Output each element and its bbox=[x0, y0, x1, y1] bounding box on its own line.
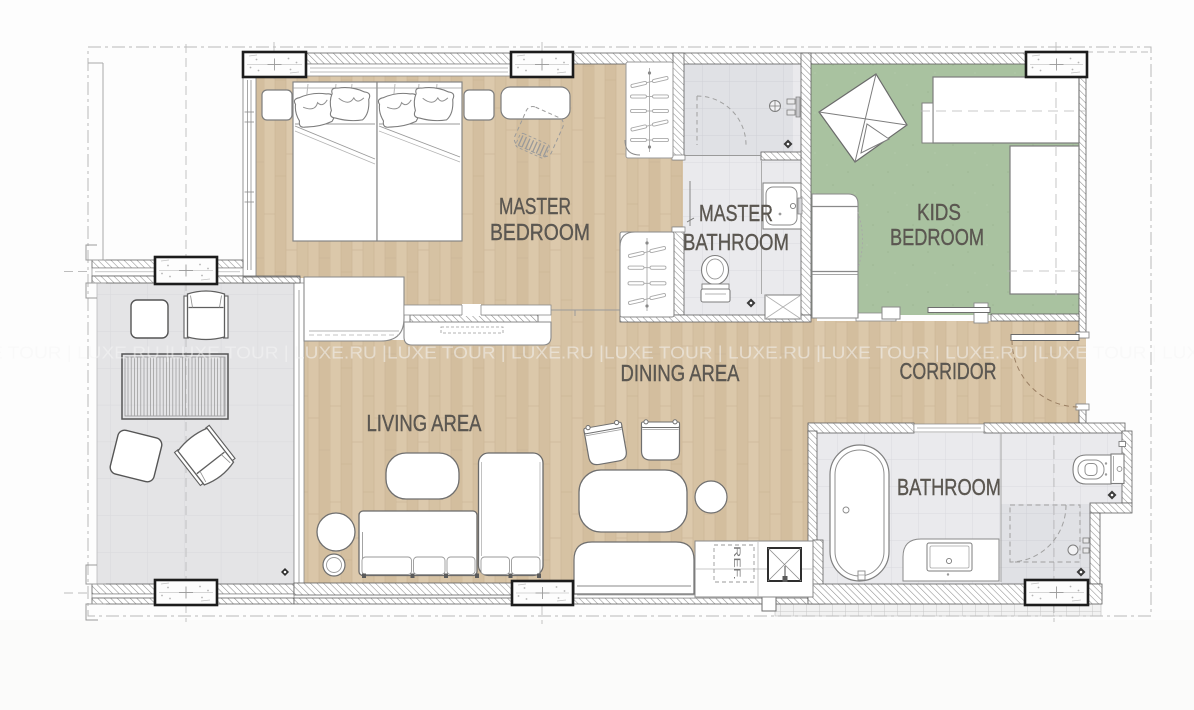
svg-text:MASTER: MASTER bbox=[499, 193, 571, 219]
svg-text:LUXE TOUR | LUXE.RU |LUXE TOUR: LUXE TOUR | LUXE.RU |LUXE TOUR | LUXE.RU… bbox=[0, 343, 1194, 363]
svg-text:MASTER: MASTER bbox=[699, 200, 773, 226]
svg-text:BATHROOM: BATHROOM bbox=[897, 474, 1001, 500]
svg-text:KIDS: KIDS bbox=[917, 199, 961, 225]
svg-text:BEDROOM: BEDROOM bbox=[890, 224, 984, 250]
svg-text:LIVING AREA: LIVING AREA bbox=[367, 410, 483, 436]
svg-text:DINING AREA: DINING AREA bbox=[621, 360, 741, 386]
svg-text:BEDROOM: BEDROOM bbox=[490, 219, 590, 245]
svg-text:BATHROOM: BATHROOM bbox=[683, 229, 789, 255]
svg-text:REF.: REF. bbox=[731, 546, 742, 580]
